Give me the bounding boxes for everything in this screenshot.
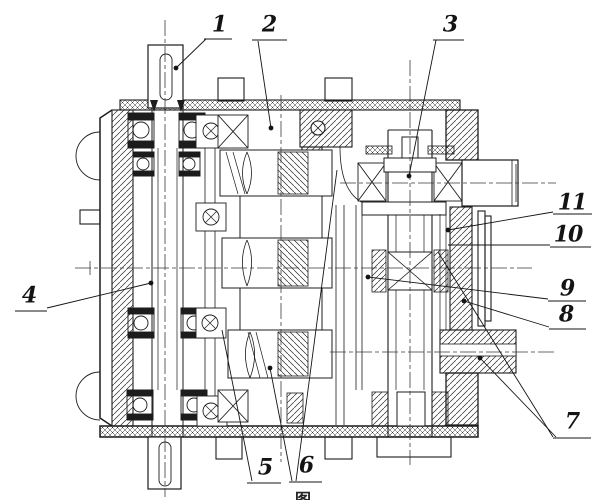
callout-label-6: 6 [299, 455, 313, 477]
intermediate-gear-cluster [220, 150, 332, 423]
engineering-drawing-canvas: 1234567891011 图 [0, 0, 600, 500]
callout-2-dot [269, 126, 274, 131]
callout-11-dot [446, 228, 451, 233]
callout-label-4: 4 [22, 285, 36, 307]
callout-8-dot [462, 299, 467, 304]
callout-label-2: 2 [262, 14, 276, 36]
callout-label-7: 7 [565, 411, 579, 433]
gearbox-sectional-drawing [0, 0, 600, 500]
ball-bearings-left-shaft [127, 113, 207, 420]
callout-label-1: 1 [212, 14, 226, 36]
callout-4-leader-1 [47, 283, 151, 308]
callout-9-dot [366, 275, 371, 280]
callout-7-dot [478, 356, 483, 361]
callout-2-leader-1 [258, 41, 271, 128]
figure-caption-partial: 图 [295, 486, 311, 500]
callout-label-11: 11 [558, 192, 587, 214]
callout-label-9: 9 [560, 278, 574, 300]
callout-label-8: 8 [559, 304, 573, 326]
callout-label-10: 10 [554, 224, 583, 246]
callout-1-dot [174, 66, 179, 71]
callout-label-3: 3 [443, 14, 457, 36]
left-input-shaft [148, 45, 185, 489]
callout-4-dot [149, 281, 154, 286]
callout-7-leader-2 [480, 358, 556, 437]
callout-label-5: 5 [258, 457, 272, 479]
callout-6-dot [268, 366, 273, 371]
callout-3-dot [407, 174, 412, 179]
